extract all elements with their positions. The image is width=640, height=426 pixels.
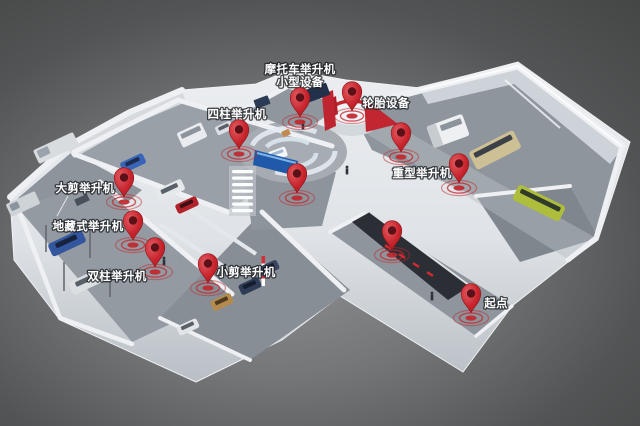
label-start-point: 起点 <box>483 296 508 310</box>
louvered-wall <box>229 166 256 216</box>
scene-svg: 摩托车举升机小型设备四柱举升机轮胎设备大剪举升机地藏式举升机双柱举升机小剪举升机… <box>0 0 640 426</box>
label-four-post-lift: 四柱举升机 <box>208 107 267 121</box>
label-two-post-lift: 双柱举升机 <box>87 269 147 283</box>
label-tire-equipment: 轮胎设备 <box>362 96 409 110</box>
scene-3d-floorplan: 摩托车举升机小型设备四柱举升机轮胎设备大剪举升机地藏式举升机双柱举升机小剪举升机… <box>0 0 640 426</box>
label-heavy-duty-lift: 重型举升机 <box>393 166 452 180</box>
label-small-scissor-lift: 小剪举升机 <box>216 265 276 279</box>
label-underground-lift: 地藏式举升机 <box>53 219 124 233</box>
label-large-scissor-lift: 大剪举升机 <box>56 181 115 195</box>
